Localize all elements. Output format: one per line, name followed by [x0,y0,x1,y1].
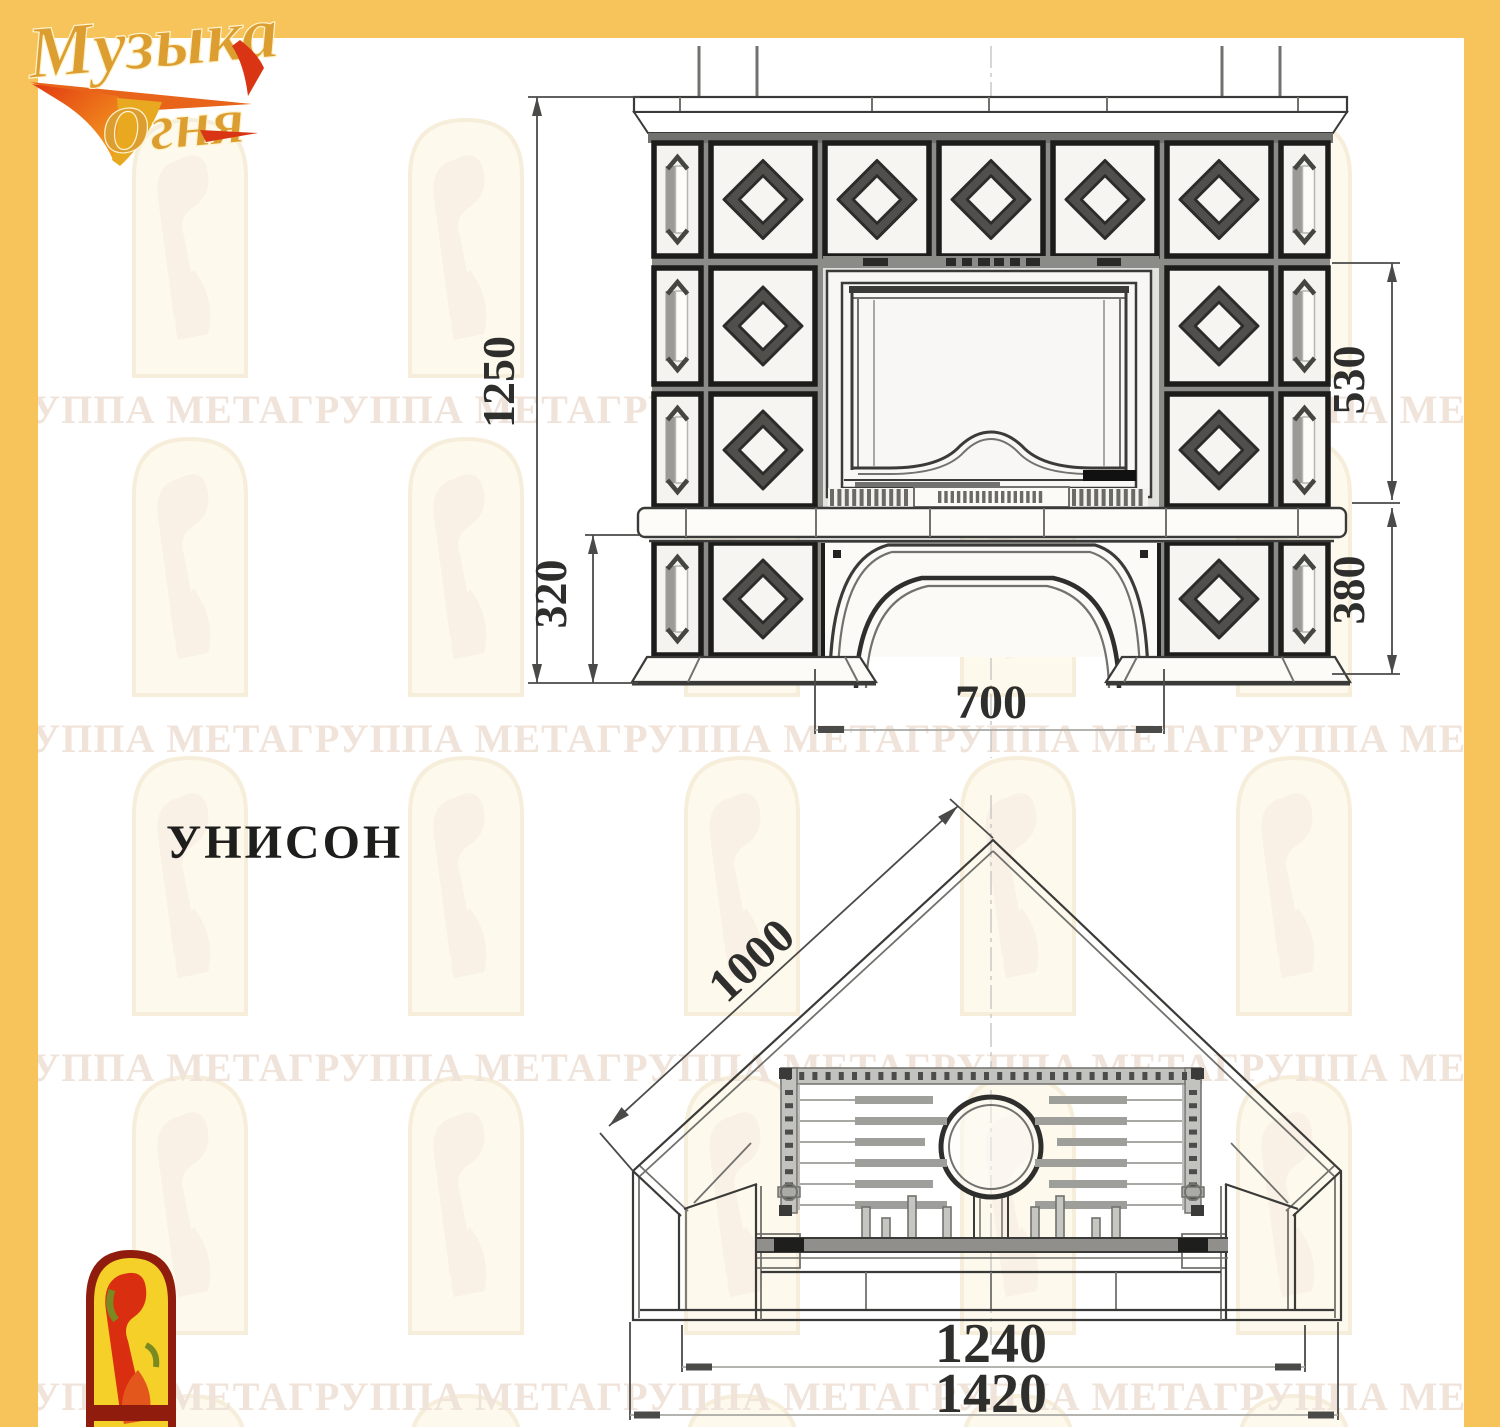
svg-text:380: 380 [1323,556,1374,625]
svg-text:УНИСОН: УНИСОН [166,816,403,869]
svg-text:700: 700 [955,676,1027,729]
svg-text:ГРУППА МЕТАГРУППА МЕТАГРУППА М: ГРУППА МЕТАГРУППА МЕТАГРУППА МЕТАГРУППА … [0,1374,1500,1419]
svg-text:320: 320 [525,560,576,629]
svg-text:1250: 1250 [473,336,524,428]
svg-text:ГРУППА МЕТАГРУППА МЕТАГРУППА М: ГРУППА МЕТАГРУППА МЕТАГРУППА МЕТАГРУППА … [0,716,1500,761]
svg-text:1420: 1420 [935,1363,1047,1425]
svg-text:Огня: Огня [99,84,247,169]
svg-text:ГРУППА МЕТАГРУППА МЕТАГРУППА М: ГРУППА МЕТАГРУППА МЕТАГРУППА МЕТАГРУППА … [0,1045,1500,1090]
svg-text:530: 530 [1323,346,1374,415]
